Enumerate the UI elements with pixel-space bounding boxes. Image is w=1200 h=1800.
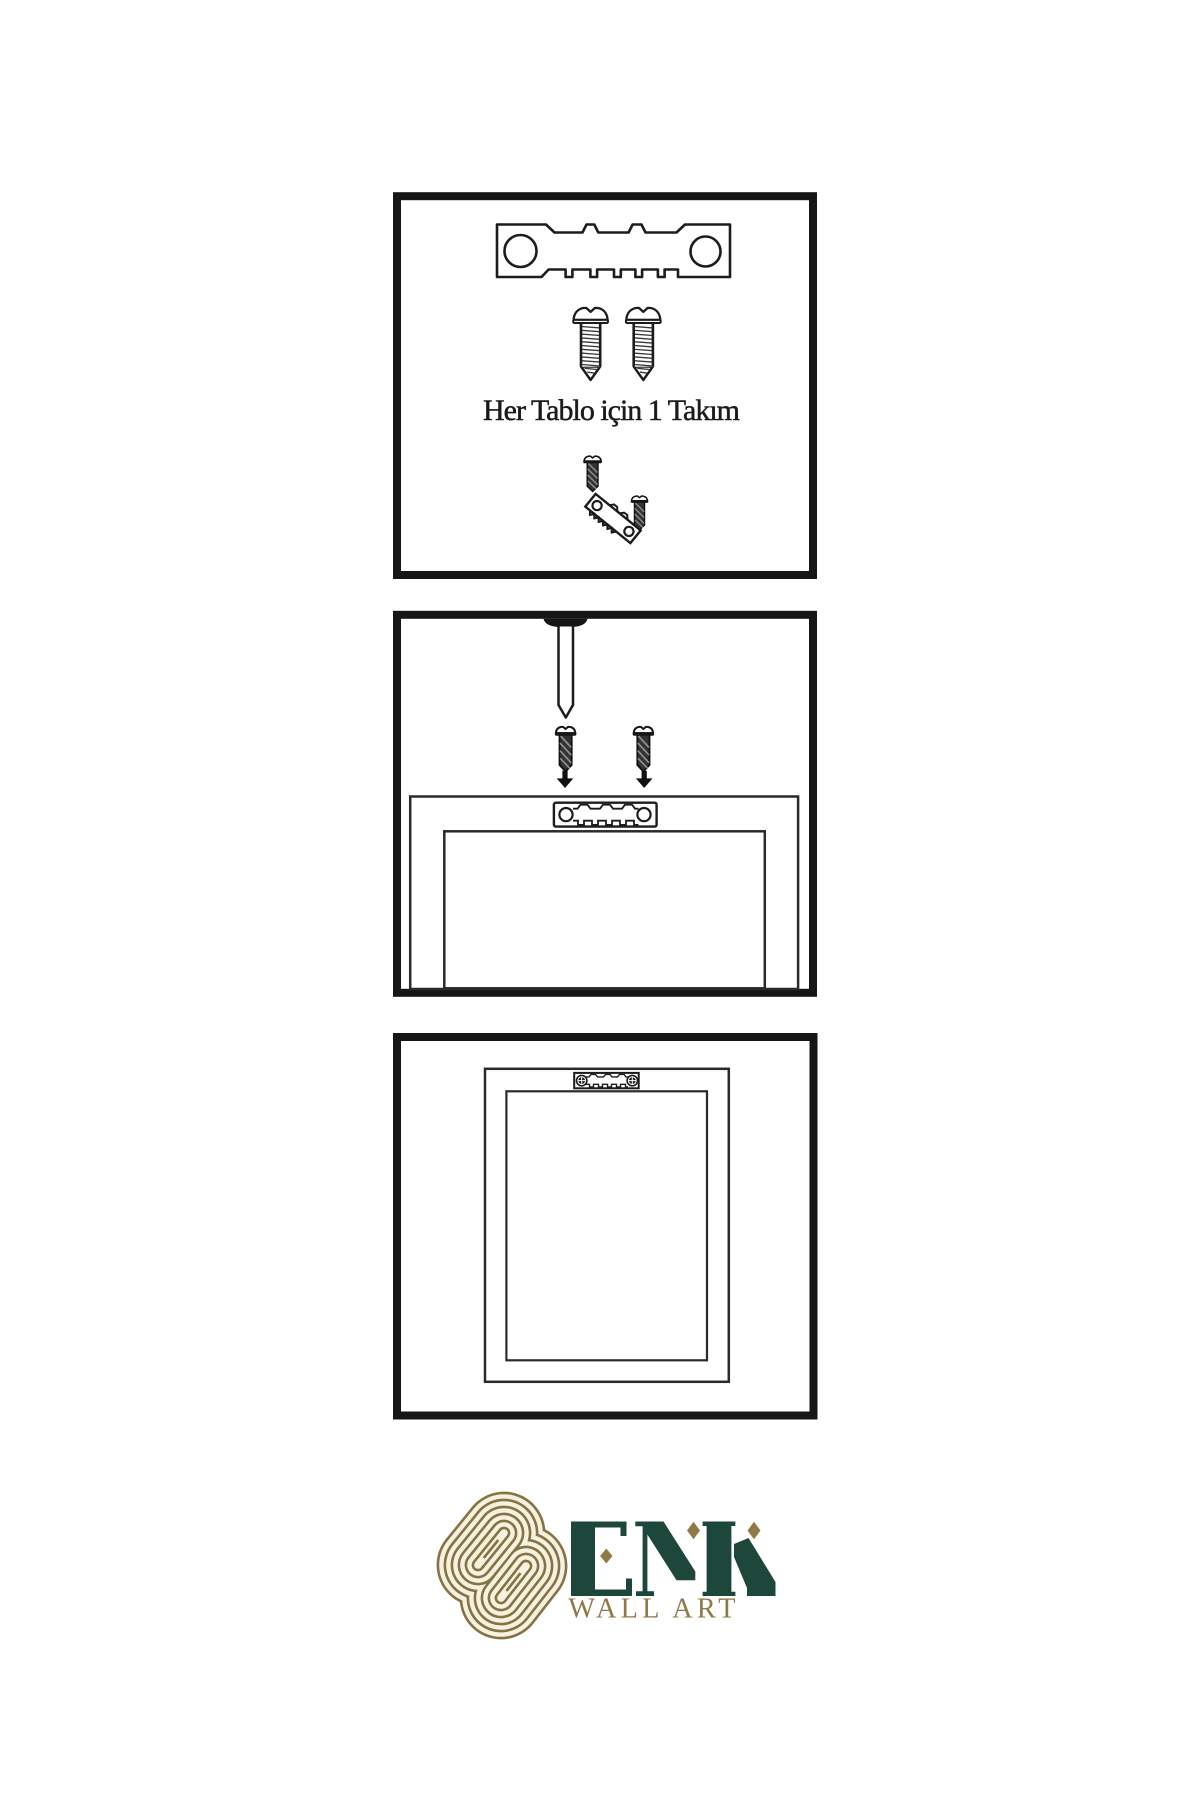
svg-text:Her Tablo için 1 Takım: Her Tablo için 1 Takım xyxy=(483,394,740,427)
svg-text:WALL ART: WALL ART xyxy=(568,1594,740,1625)
